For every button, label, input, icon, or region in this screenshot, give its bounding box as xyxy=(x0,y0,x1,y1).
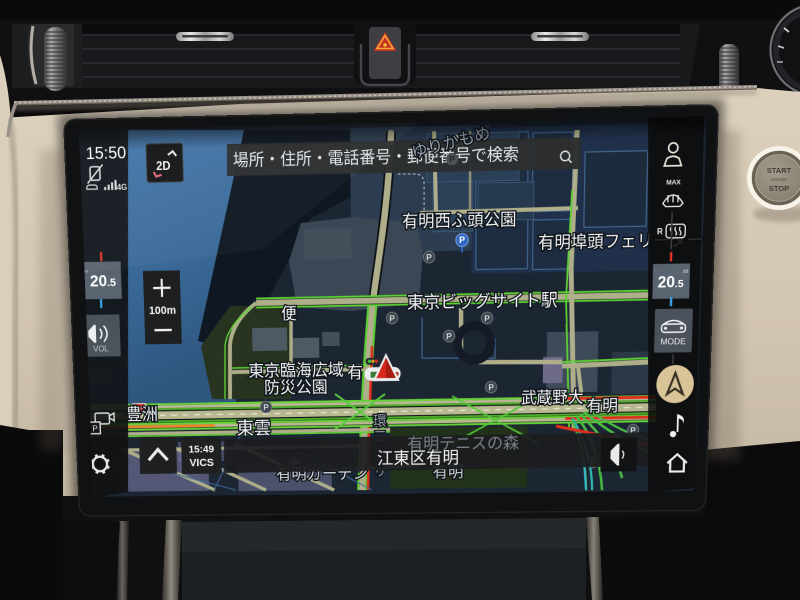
svg-text:有明西ふ頭公園: 有明西ふ頭公園 xyxy=(402,210,517,231)
svg-text:STOP: STOP xyxy=(769,184,789,193)
svg-text:防災公園: 防災公園 xyxy=(264,378,328,397)
svg-text:START: START xyxy=(767,166,792,175)
svg-text:有: 有 xyxy=(347,363,363,382)
svg-text:VOL: VOL xyxy=(93,345,109,354)
svg-text:ENGINE: ENGINE xyxy=(771,177,787,182)
svg-text:有明: 有明 xyxy=(586,397,618,415)
svg-text:P: P xyxy=(92,424,98,434)
svg-text:P: P xyxy=(263,402,269,412)
svg-text:便: 便 xyxy=(281,305,297,323)
svg-text:P: P xyxy=(449,154,455,164)
svg-text:豊洲: 豊洲 xyxy=(125,404,158,424)
svg-text:100m: 100m xyxy=(149,305,176,317)
svg-text:有明テニスの森: 有明テニスの森 xyxy=(407,434,519,454)
svg-text:MAX: MAX xyxy=(666,179,681,187)
svg-text:ss: ss xyxy=(683,269,689,275)
svg-text:15:49: 15:49 xyxy=(188,444,214,456)
svg-text:R: R xyxy=(657,227,663,236)
svg-text:P: P xyxy=(484,313,490,323)
svg-text:P: P xyxy=(446,331,452,341)
svg-text:東雲: 東雲 xyxy=(236,417,271,438)
svg-text:VICS: VICS xyxy=(189,457,214,469)
svg-text:MODE: MODE xyxy=(660,336,686,346)
svg-text:環: 環 xyxy=(373,414,387,430)
svg-text:武蔵野大: 武蔵野大 xyxy=(521,389,584,407)
svg-text:P: P xyxy=(459,235,465,245)
svg-text:P: P xyxy=(389,313,395,323)
svg-text:東京ビッグサイト駅: 東京ビッグサイト駅 xyxy=(407,290,558,312)
svg-text:P: P xyxy=(426,252,432,262)
svg-text:P: P xyxy=(488,382,494,392)
